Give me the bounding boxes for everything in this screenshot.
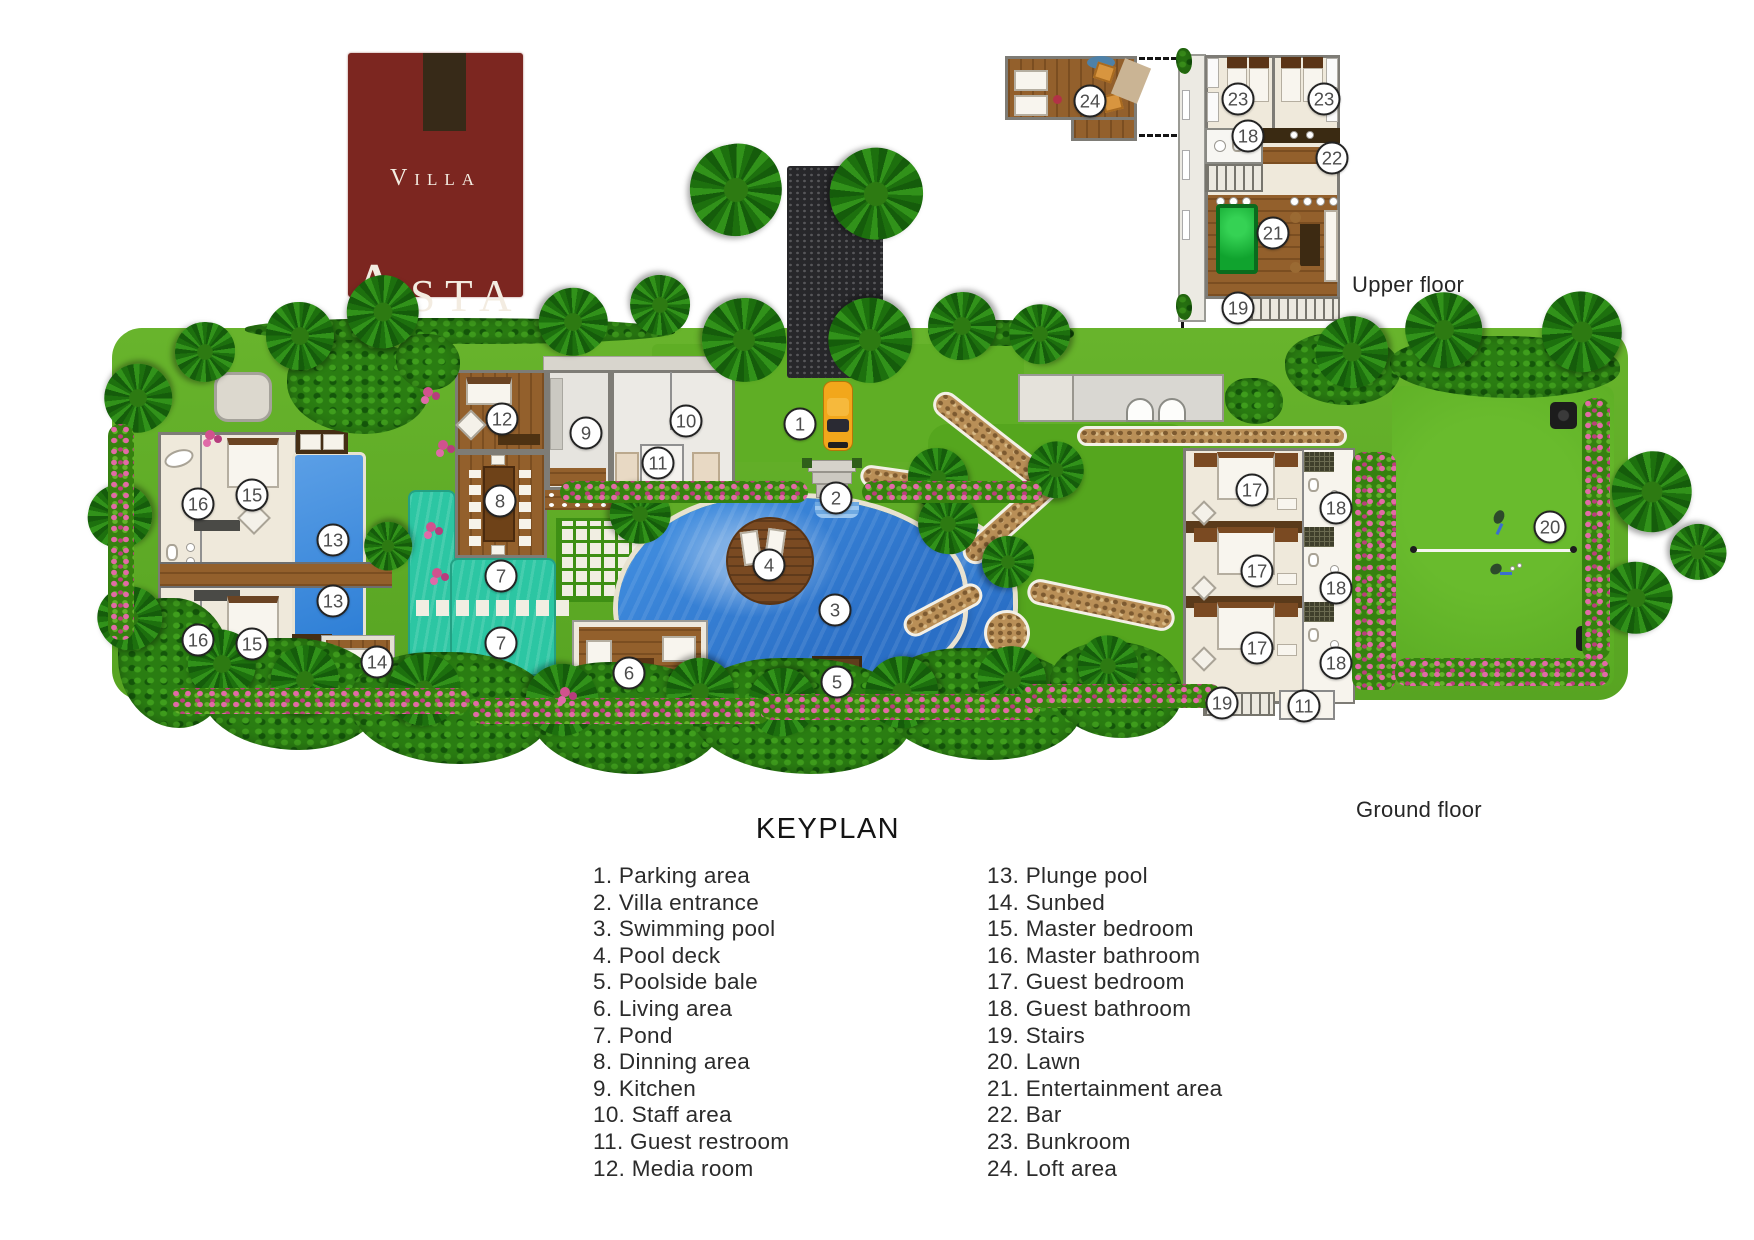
bunk-closet	[1207, 92, 1219, 122]
plan-marker-18: 18	[1320, 492, 1353, 525]
media-console	[1300, 224, 1320, 266]
bunk-closet	[1207, 58, 1219, 88]
legend-item-9: 9. Kitchen	[593, 1076, 789, 1103]
legend-item-15: 15. Master bedroom	[987, 916, 1223, 943]
dining-chairs-left	[469, 470, 481, 546]
logo-villa-text: Villa	[348, 165, 523, 192]
legend-item-19: 19. Stairs	[987, 1023, 1223, 1050]
plan-marker-15: 15	[236, 628, 269, 661]
loft-sofa	[1014, 95, 1048, 116]
plan-marker-9: 9	[570, 417, 603, 450]
legend-column-right: 13. Plunge pool14. Sunbed15. Master bedr…	[987, 863, 1223, 1182]
pendant-light	[1316, 197, 1325, 206]
terrace-plant	[1176, 294, 1192, 320]
plan-marker-8: 8	[484, 485, 517, 518]
sink-icon	[186, 543, 195, 552]
plan-marker-17: 17	[1241, 632, 1274, 665]
plan-marker-4: 4	[753, 549, 786, 582]
car-windshield	[827, 419, 849, 432]
bunkroom-divider-wall	[1272, 55, 1275, 128]
legend-item-5: 5. Poolside bale	[593, 969, 789, 996]
pendant-light	[1290, 197, 1299, 206]
flower-bed	[560, 481, 808, 503]
toilet-icon	[1308, 628, 1319, 642]
bunk-bed	[1281, 68, 1301, 102]
legend-item-18: 18. Guest bathroom	[987, 996, 1223, 1023]
villa-logo: Villa Asta	[348, 53, 523, 297]
legend-item-14: 14. Sunbed	[987, 890, 1223, 917]
guest-wing-front-path	[1077, 426, 1347, 446]
bar-sink-icon	[1306, 131, 1314, 139]
plan-marker-7: 7	[485, 627, 518, 660]
car-grill	[828, 442, 848, 448]
plan-marker-11: 11	[1288, 690, 1321, 723]
legend-item-3: 3. Swimming pool	[593, 916, 789, 943]
plan-marker-18: 18	[1232, 120, 1265, 153]
plan-marker-13: 13	[317, 524, 350, 557]
plan-marker-24: 24	[1074, 85, 1107, 118]
plan-marker-11: 11	[642, 447, 675, 480]
plan-marker-17: 17	[1236, 474, 1269, 507]
flower-bed	[760, 694, 1040, 720]
plan-marker-23: 23	[1308, 83, 1341, 116]
plan-marker-2: 2	[820, 482, 853, 515]
bunk-headboard	[1303, 57, 1323, 68]
plan-marker-22: 22	[1316, 142, 1349, 175]
net-post-dot	[1410, 546, 1417, 553]
legend-column-left: 1. Parking area2. Villa entrance3. Swimm…	[593, 863, 789, 1182]
toilet-icon	[1308, 553, 1319, 567]
wood-corridor-bridge	[160, 562, 392, 588]
plan-marker-16: 16	[182, 624, 215, 657]
entrance-planter-left	[802, 458, 812, 468]
loft-connector-bottom	[1139, 134, 1177, 137]
net-post-dot	[1570, 546, 1577, 553]
garden-wall	[1018, 374, 1076, 422]
pendant-light	[1303, 197, 1312, 206]
legend-item-2: 2. Villa entrance	[593, 890, 789, 917]
master-closet-1	[194, 520, 240, 531]
villa-asta-keyplan: Villa Asta	[0, 0, 1754, 1240]
legend-item-11: 11. Guest restroom	[593, 1129, 789, 1156]
palm-tree-icon	[1662, 516, 1735, 589]
plan-marker-3: 3	[819, 594, 852, 627]
pool-lounger-cushion	[300, 434, 321, 450]
flower-cluster	[205, 430, 215, 440]
dining-chair-end	[491, 455, 505, 465]
palm-tree-icon	[682, 136, 790, 244]
legend-item-7: 7. Pond	[593, 1023, 789, 1050]
loft-connector-top	[1139, 57, 1177, 60]
keyplan-title: KEYPLAN	[700, 813, 956, 846]
guest-desk	[1277, 498, 1297, 510]
terrace-walkway	[214, 372, 272, 422]
parking-car	[823, 381, 853, 451]
legend-item-22: 22. Bar	[987, 1102, 1223, 1129]
gate-arch	[1126, 398, 1154, 422]
guest-desk	[1277, 644, 1297, 656]
flower-bed	[108, 424, 134, 640]
bunk-headboard	[1227, 57, 1247, 68]
media-tv-console	[498, 434, 540, 445]
stepping-stones-row	[416, 600, 572, 616]
kitchen-counter	[550, 378, 563, 450]
outdoor-shower	[1304, 602, 1334, 622]
pool-table	[1216, 204, 1258, 274]
media-daybed	[466, 377, 512, 405]
legend-item-4: 4. Pool deck	[593, 943, 789, 970]
terrace-window	[1182, 150, 1190, 180]
plan-marker-15: 15	[236, 479, 269, 512]
plan-marker-12: 12	[486, 403, 519, 436]
legend-item-1: 1. Parking area	[593, 863, 789, 890]
plan-marker-6: 6	[613, 657, 646, 690]
flower-bed	[1395, 658, 1610, 686]
plan-marker-18: 18	[1320, 572, 1353, 605]
plan-marker-13: 13	[317, 585, 350, 618]
dining-chair-end	[491, 545, 505, 555]
flower-cluster	[560, 687, 570, 697]
loft-sofa	[1014, 70, 1048, 91]
entrance-planter-right	[852, 458, 862, 468]
terrace-window	[1182, 210, 1190, 240]
stool	[1290, 212, 1301, 223]
pond-west	[408, 490, 456, 676]
upper-stairs	[1240, 297, 1340, 321]
legend-item-8: 8. Dinning area	[593, 1049, 789, 1076]
ground-floor-label: Ground floor	[1356, 797, 1482, 823]
legend-item-13: 13. Plunge pool	[987, 863, 1223, 890]
loft-area-extension	[1071, 117, 1137, 141]
legend-item-21: 21. Entertainment area	[987, 1076, 1223, 1103]
villa-entrance-steps	[808, 460, 856, 472]
legend-item-17: 17. Guest bedroom	[987, 969, 1223, 996]
flower-cluster	[432, 568, 442, 578]
racket-handle	[1500, 572, 1512, 575]
flower-bed	[862, 481, 1042, 503]
logo-tab	[423, 53, 466, 131]
plan-marker-10: 10	[670, 405, 703, 438]
badminton-net-line	[1414, 549, 1572, 552]
car-roof	[827, 398, 849, 416]
shuttlecock-icon	[1517, 563, 1522, 568]
legend-item-10: 10. Staff area	[593, 1102, 789, 1129]
stool	[1290, 262, 1301, 273]
toilet-icon	[166, 544, 178, 561]
staff-bed-1	[615, 452, 639, 484]
plan-marker-17: 17	[1241, 555, 1274, 588]
terrace-plant	[1176, 48, 1192, 74]
legend-item-6: 6. Living area	[593, 996, 789, 1023]
plan-marker-19: 19	[1222, 292, 1255, 325]
pool-lounger-cushion	[323, 434, 344, 450]
plan-marker-14: 14	[361, 646, 394, 679]
loft-pouf	[1053, 95, 1062, 104]
flower-cluster	[423, 387, 433, 397]
plan-marker-18: 18	[1320, 647, 1353, 680]
outdoor-shower	[1304, 527, 1334, 547]
gate-arch	[1158, 398, 1186, 422]
plan-marker-16: 16	[182, 488, 215, 521]
plan-marker-5: 5	[821, 666, 854, 699]
dining-chairs-right	[519, 470, 531, 546]
plan-marker-21: 21	[1257, 217, 1290, 250]
flower-bed	[1352, 452, 1396, 690]
guest-desk	[1277, 573, 1297, 585]
bar-sink-icon	[1290, 131, 1298, 139]
flower-bed	[1582, 398, 1610, 660]
flower-cluster	[438, 440, 448, 450]
outdoor-shower	[1304, 452, 1334, 472]
plan-marker-23: 23	[1222, 83, 1255, 116]
shuttlecock-icon	[1510, 566, 1515, 571]
legend-item-23: 23. Bunkroom	[987, 1129, 1223, 1156]
toilet-icon	[1308, 478, 1319, 492]
flower-bed	[470, 698, 770, 724]
bunk-headboard	[1249, 57, 1269, 68]
plan-marker-7: 7	[485, 560, 518, 593]
bunk-headboard	[1281, 57, 1301, 68]
plan-marker-19: 19	[1206, 687, 1239, 720]
flower-cluster	[426, 522, 436, 532]
upper-stairwell	[1205, 164, 1263, 192]
sofa	[1324, 210, 1338, 282]
terrace-window	[1182, 90, 1190, 120]
legend-item-20: 20. Lawn	[987, 1049, 1223, 1076]
pendant-light	[1329, 197, 1338, 206]
plan-marker-20: 20	[1534, 511, 1567, 544]
legend-item-16: 16. Master bathroom	[987, 943, 1223, 970]
legend-item-24: 24. Loft area	[987, 1156, 1223, 1183]
flower-bed	[170, 688, 470, 714]
legend-item-12: 12. Media room	[593, 1156, 789, 1183]
palm-tree-icon	[266, 302, 334, 370]
flower-bed	[1022, 684, 1222, 708]
garden-speaker	[1550, 402, 1577, 429]
sink-icon	[1214, 140, 1226, 152]
plan-marker-1: 1	[784, 408, 817, 441]
